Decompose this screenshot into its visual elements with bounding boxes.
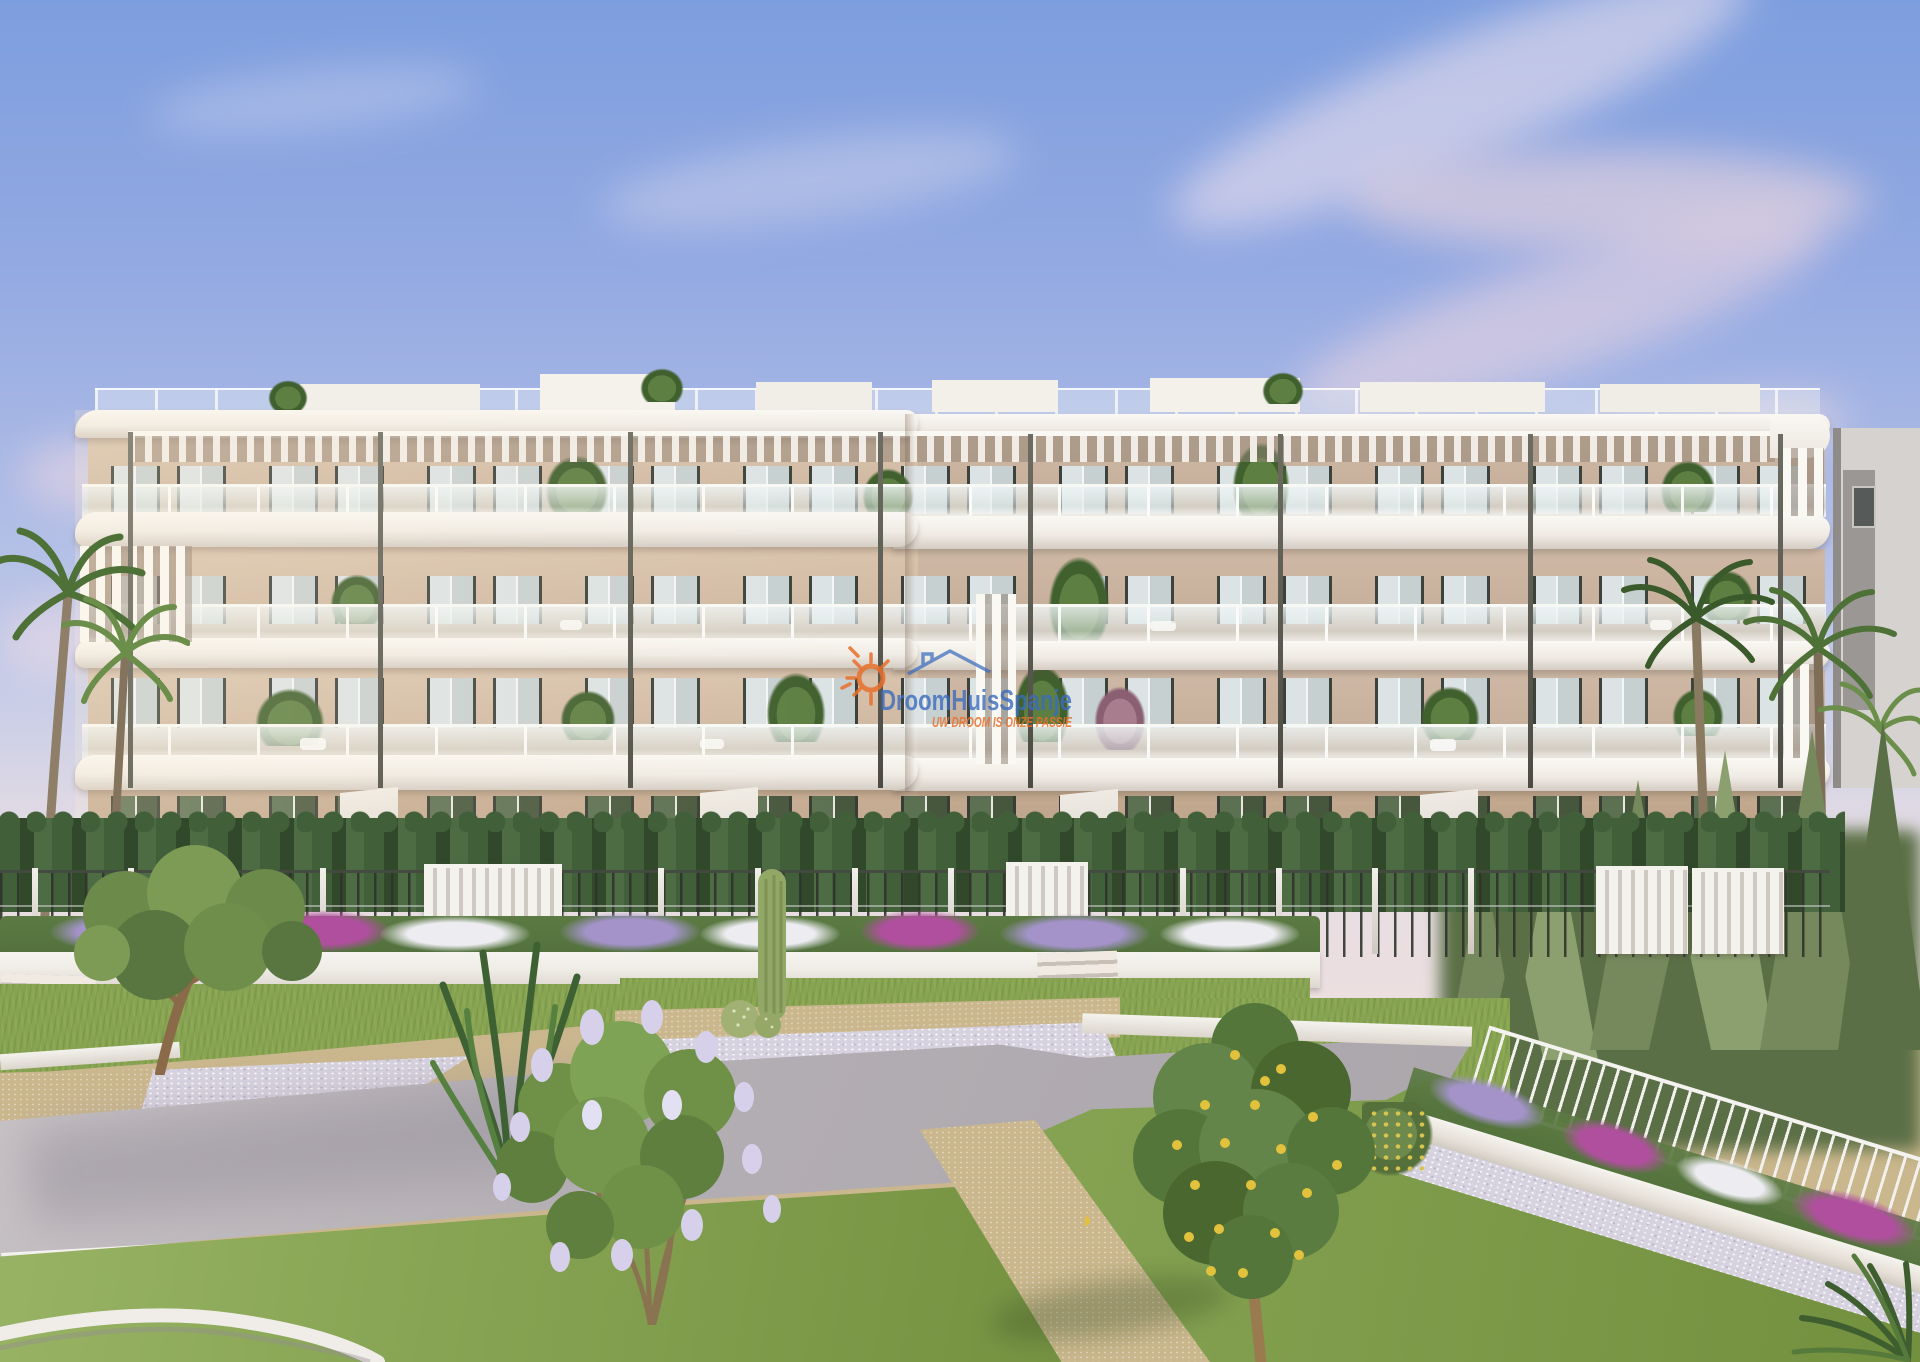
hedge-top-texture [0, 806, 1845, 832]
terrace-furniture [560, 620, 582, 630]
roof-volume [756, 382, 872, 412]
lavender-cluster [1000, 914, 1150, 954]
white-flower-cluster [1160, 916, 1300, 952]
watermark-brand: DroomHuisSpanje [880, 685, 1072, 717]
watermark: DroomHuisSpanje UW DROOM IS ONZE PASSIE [828, 640, 1138, 740]
fascia-f2-left [75, 512, 918, 547]
terrace-furniture [700, 739, 724, 749]
roof-plant [640, 368, 684, 402]
garden-gate [1596, 866, 1688, 954]
lemon-tree [1085, 985, 1425, 1362]
pergola-post [628, 432, 633, 788]
corner-palm [1758, 1248, 1920, 1362]
roof-volume [300, 384, 480, 412]
roof-volume [1360, 382, 1545, 412]
roof-volume [932, 380, 1058, 412]
fence-post [1468, 868, 1474, 954]
pergola-post [1278, 434, 1283, 788]
roof-plant [268, 380, 308, 410]
roof-volume [1600, 384, 1760, 412]
fence-post [1372, 868, 1378, 954]
cactus-group [710, 855, 830, 1050]
watermark-tagline: UW DROOM IS ONZE PASSIE [932, 715, 1073, 731]
olive-tree [30, 835, 360, 1075]
privacy-slats-f3-right-corner [1782, 448, 1824, 516]
magenta-cluster [860, 910, 980, 952]
fascia-f1-left [75, 638, 918, 668]
terrace-furniture [300, 738, 326, 750]
curb-arc-bottom-left [0, 1268, 420, 1362]
terrace-furniture [1150, 621, 1176, 631]
render-canvas: DroomHuisSpanje UW DROOM IS ONZE PASSIE [0, 0, 1920, 1362]
roof-plant [1262, 372, 1304, 404]
fascia-gf-left [75, 755, 918, 790]
garden-gate [1692, 868, 1784, 954]
house-roof-icon [908, 651, 990, 674]
pergola-post [378, 432, 383, 788]
